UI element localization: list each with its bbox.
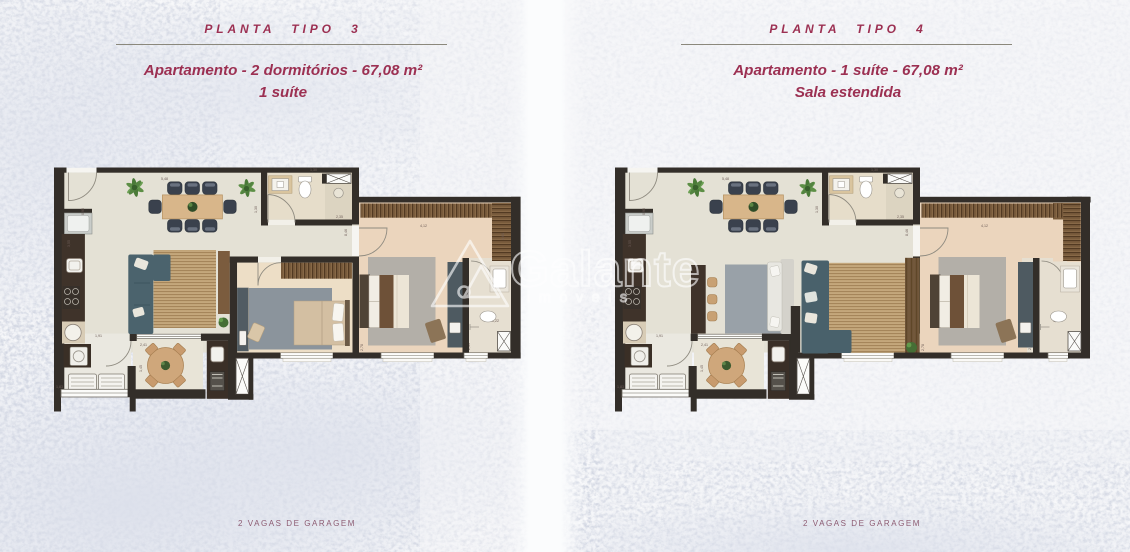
svg-text:1,45: 1,45	[700, 365, 704, 372]
svg-text:Galante: Galante	[510, 241, 700, 297]
svg-text:2,41: 2,41	[701, 343, 708, 347]
svg-text:3,55: 3,55	[67, 240, 71, 247]
svg-text:5,48: 5,48	[161, 177, 168, 181]
svg-text:2,35: 2,35	[897, 215, 904, 219]
svg-text:5,48: 5,48	[722, 177, 729, 181]
svg-text:2,35: 2,35	[336, 215, 343, 219]
svg-text:0,95: 0,95	[642, 208, 646, 215]
svg-text:1,30: 1,30	[254, 206, 258, 213]
svg-text:1,30: 1,30	[871, 168, 878, 172]
svg-text:imóveis: imóveis	[527, 290, 636, 306]
svg-text:1,83: 1,83	[617, 385, 624, 389]
svg-text:8,46: 8,46	[905, 229, 909, 236]
svg-text:4,12: 4,12	[981, 224, 988, 228]
svg-text:1,91: 1,91	[656, 334, 663, 338]
svg-text:1,91: 1,91	[95, 334, 102, 338]
svg-text:1,83: 1,83	[56, 385, 63, 389]
svg-text:1,30: 1,30	[310, 168, 317, 172]
svg-text:1,30: 1,30	[815, 206, 819, 213]
svg-text:4,12: 4,12	[420, 224, 427, 228]
svg-text:8,46: 8,46	[344, 229, 348, 236]
svg-text:2,78: 2,78	[360, 344, 364, 351]
svg-text:2,41: 2,41	[140, 343, 147, 347]
svg-text:0,95: 0,95	[81, 208, 85, 215]
svg-text:1,45: 1,45	[139, 365, 143, 372]
svg-text:2,78: 2,78	[921, 344, 925, 351]
